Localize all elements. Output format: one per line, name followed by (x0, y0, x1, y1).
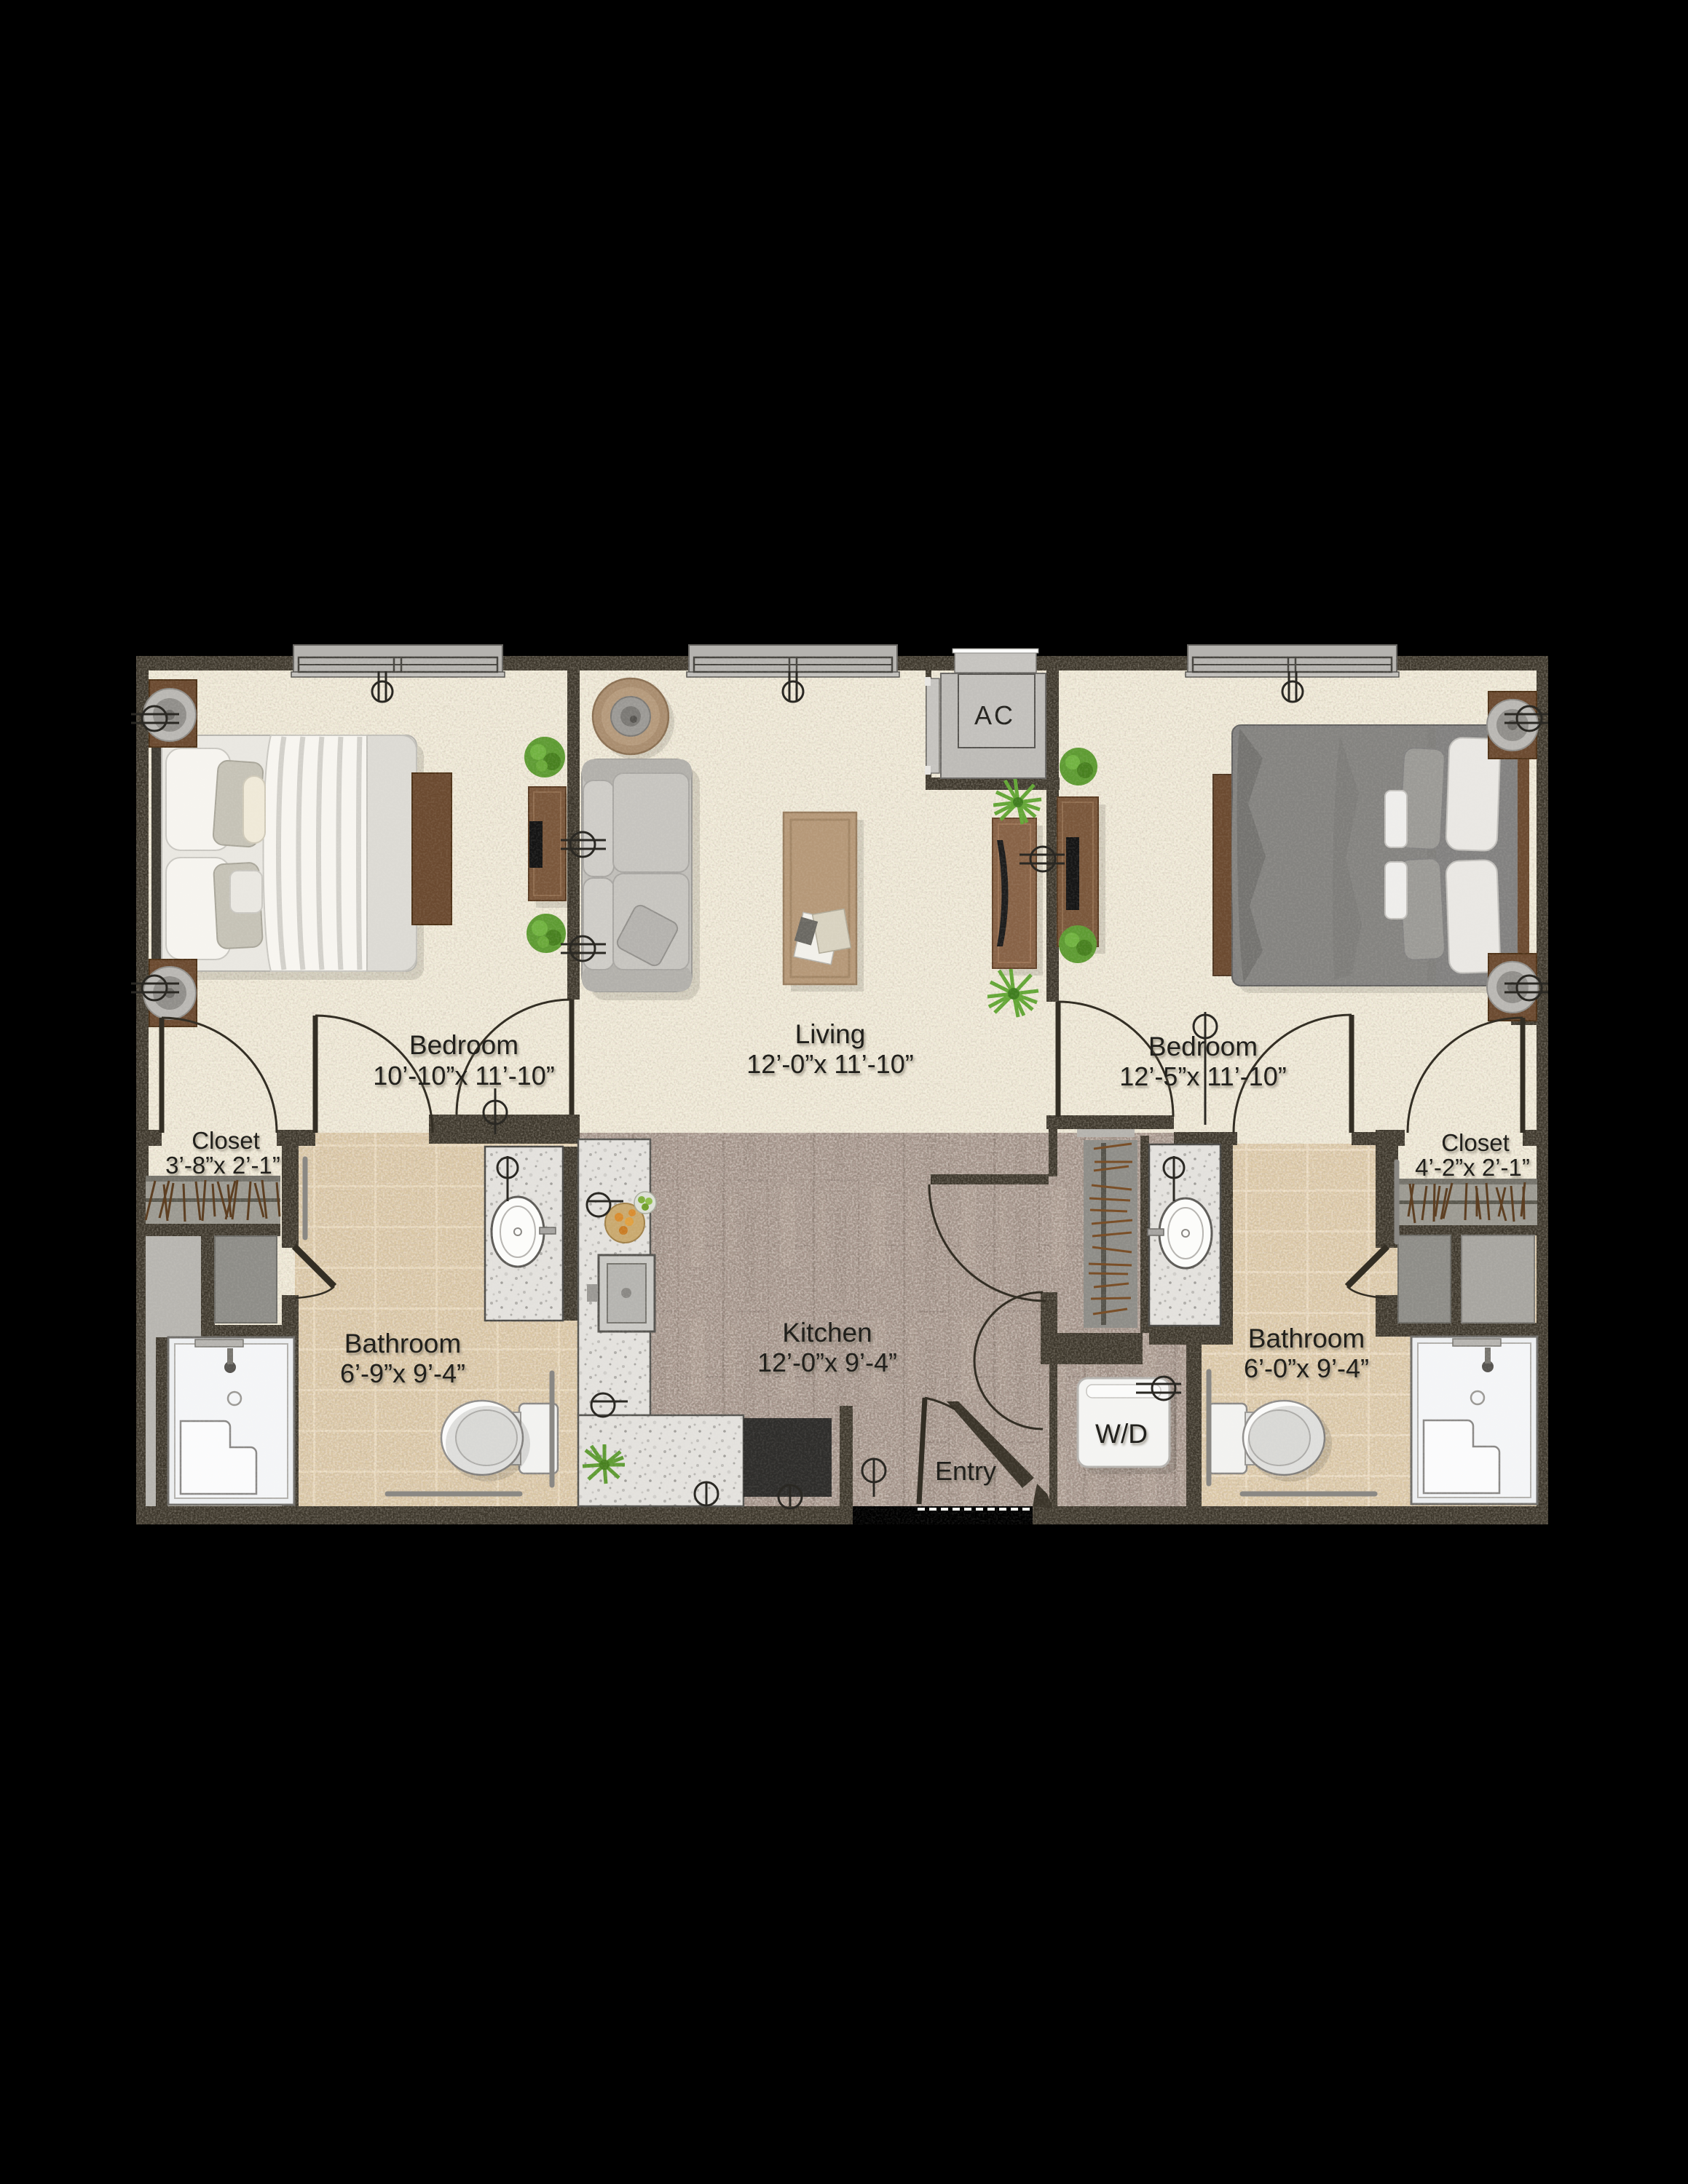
svg-text:Bedroom: Bedroom (409, 1030, 518, 1060)
svg-text:12’-5”x 11’-10”: 12’-5”x 11’-10” (1119, 1061, 1286, 1091)
svg-text:W/D: W/D (1095, 1419, 1148, 1449)
svg-text:6’-0”x 9’-4”: 6’-0”x 9’-4” (1244, 1353, 1369, 1383)
svg-text:12’-0”x 9’-4”: 12’-0”x 9’-4” (757, 1348, 897, 1377)
svg-text:10’-10”x 11’-10”: 10’-10”x 11’-10” (373, 1061, 554, 1091)
svg-text:4’-2”x 2’-1”: 4’-2”x 2’-1” (1415, 1154, 1530, 1181)
svg-text:Bathroom: Bathroom (344, 1329, 461, 1358)
svg-text:6’-9”x 9’-4”: 6’-9”x 9’-4” (340, 1358, 465, 1388)
svg-text:Entry: Entry (935, 1456, 996, 1486)
svg-text:Living: Living (795, 1019, 866, 1049)
svg-text:Closet: Closet (1441, 1129, 1510, 1156)
svg-text:Closet: Closet (192, 1127, 260, 1154)
svg-text:3’-8”x 2’-1”: 3’-8”x 2’-1” (165, 1152, 280, 1179)
svg-text:12’-0”x 11’-10”: 12’-0”x 11’-10” (746, 1049, 913, 1079)
svg-text:Bathroom: Bathroom (1248, 1324, 1365, 1353)
svg-text:Bedroom: Bedroom (1148, 1032, 1258, 1061)
svg-text:Kitchen: Kitchen (782, 1318, 872, 1348)
